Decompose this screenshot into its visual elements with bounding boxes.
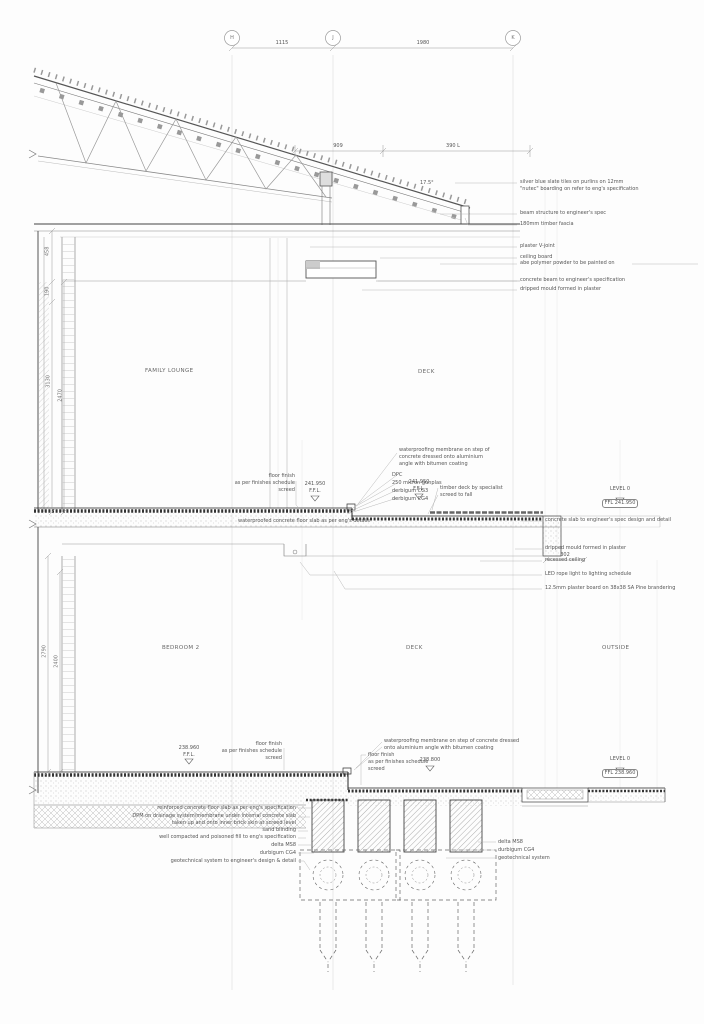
roof-post: [320, 172, 332, 225]
note-durbigum-cg4-right: durbigum CG4: [498, 847, 534, 854]
note-plasterboard: 12.5mm plaster board on 38x38 SA Pine br…: [545, 585, 675, 592]
dim-left-2470: 2470: [58, 385, 65, 405]
note-waterproof-membrane-lower: waterproofing membrane on step of concre…: [384, 738, 519, 752]
note-recessed-ceiling: recessed ceiling: [545, 557, 585, 564]
note-geotechnical-right: geotechnical system: [498, 855, 550, 862]
dim-left-2790: 2790: [42, 641, 49, 661]
level-0-label: LEVEL 0: [596, 486, 644, 493]
note-waterproof-membrane-upper: waterproofing membrane on step of concre…: [399, 447, 490, 467]
level-marker-upper-right: LEVEL 0 FFL 241.950: [596, 479, 644, 508]
level-marker-lower-right: LEVEL 0 FFL 238.960: [596, 749, 644, 778]
dim-top-1: 1115: [262, 40, 302, 47]
note-screed-to-fall: screed to fall: [440, 492, 472, 499]
roof: [29, 70, 470, 224]
level-0-label: LEVEL 0: [596, 756, 644, 763]
foundations: [300, 800, 496, 972]
note-delta-ms8-left: delta MS8: [96, 842, 296, 849]
note-timber-deck: timber deck by specialist: [440, 485, 503, 492]
lower-ceiling: [62, 544, 587, 563]
note-floor-finish-upper: floor finish as per finishes schedule sc…: [205, 473, 295, 493]
eaves-and-ceiling: [34, 224, 520, 281]
room-outside: OUTSIDE: [602, 645, 629, 652]
note-polymer-powder: abe polymer powder to be painted on: [520, 260, 615, 267]
level-marker-upper-left: 241.950 F.F.L.: [300, 481, 330, 495]
section-linework: [0, 0, 704, 1024]
roof-pitch-angle: 17.5°: [420, 180, 434, 187]
dim-roof-2: 390 L: [430, 143, 476, 150]
note-derbigum-cg4: derbigum CG4: [392, 496, 428, 503]
room-deck-lower: DECK: [406, 645, 423, 652]
note-slate-tiles: silver blue slate tiles on purlins on 12…: [520, 179, 639, 193]
dim-left-3130: 3130: [46, 371, 53, 391]
note-concrete-beam: concrete beam to engineer's specificatio…: [520, 277, 625, 284]
room-family-lounge: FAMILY LOUNGE: [145, 368, 194, 375]
note-beam-structure: beam structure to engineer's spec: [520, 210, 606, 217]
note-compacted-fill: well compacted and poisoned fill to eng'…: [96, 834, 296, 841]
note-drip-mould-mid: dripped mould formed in plaster: [545, 545, 626, 552]
architectural-section-drawing: H J K 1115 1980 909 390 L 17.5° 302 458 …: [0, 0, 704, 1024]
room-bedroom-2: BEDROOM 2: [162, 645, 200, 652]
level-0-value: FFL 241.950: [602, 499, 639, 508]
note-geotechnical-left: geotechnical system to engineer's design…: [96, 858, 296, 865]
note-plaster-vjoint: plaster V-joint: [520, 243, 555, 250]
note-delta-ms8-right: delta MS8: [498, 839, 523, 846]
dim-left-2400: 2400: [54, 651, 61, 671]
note-sand-blinding: sand blinding: [96, 827, 296, 834]
note-floor-finish-lower-right: floor finish as per finishes schedule sc…: [368, 752, 428, 772]
level-0-value: FFL 238.960: [602, 769, 639, 778]
room-deck-upper: DECK: [418, 369, 435, 376]
note-derbigum-cg3: derbigum CG3: [392, 488, 428, 495]
note-rc-floor-slab: reinforced concrete floor slab as per en…: [96, 805, 296, 812]
grid-bubble-k: K: [509, 35, 517, 42]
note-dpm-drainage: DPM on drainage system/membrane under in…: [60, 813, 296, 827]
note-dpc: DPC: [392, 472, 402, 479]
note-durbigum-cg4-left: durbigum CG4: [96, 850, 296, 857]
grid-bubble-j: J: [329, 35, 337, 42]
dim-left-190: 190: [45, 281, 52, 301]
grid-bubble-h: H: [228, 35, 236, 42]
note-led-rope-light: LED rope light to lighting schedule: [545, 571, 631, 578]
note-concrete-slab-spec: concrete slab to engineer's spec design …: [545, 517, 671, 524]
note-timber-fascia: 180mm timber fascia: [520, 221, 574, 228]
dim-top-2: 1980: [400, 40, 446, 47]
note-drip-mould-top: dripped mould formed in plaster: [520, 286, 601, 293]
note-slab-waterproofed: waterproofed concrete floor slab as per …: [238, 518, 370, 525]
dim-roof-1: 909: [318, 143, 358, 150]
note-gunplas: 250 micron gunplas: [392, 480, 442, 487]
note-floor-finish-lower-left: floor finish as per finishes schedule sc…: [190, 741, 282, 761]
dim-left-458: 458: [45, 241, 52, 261]
